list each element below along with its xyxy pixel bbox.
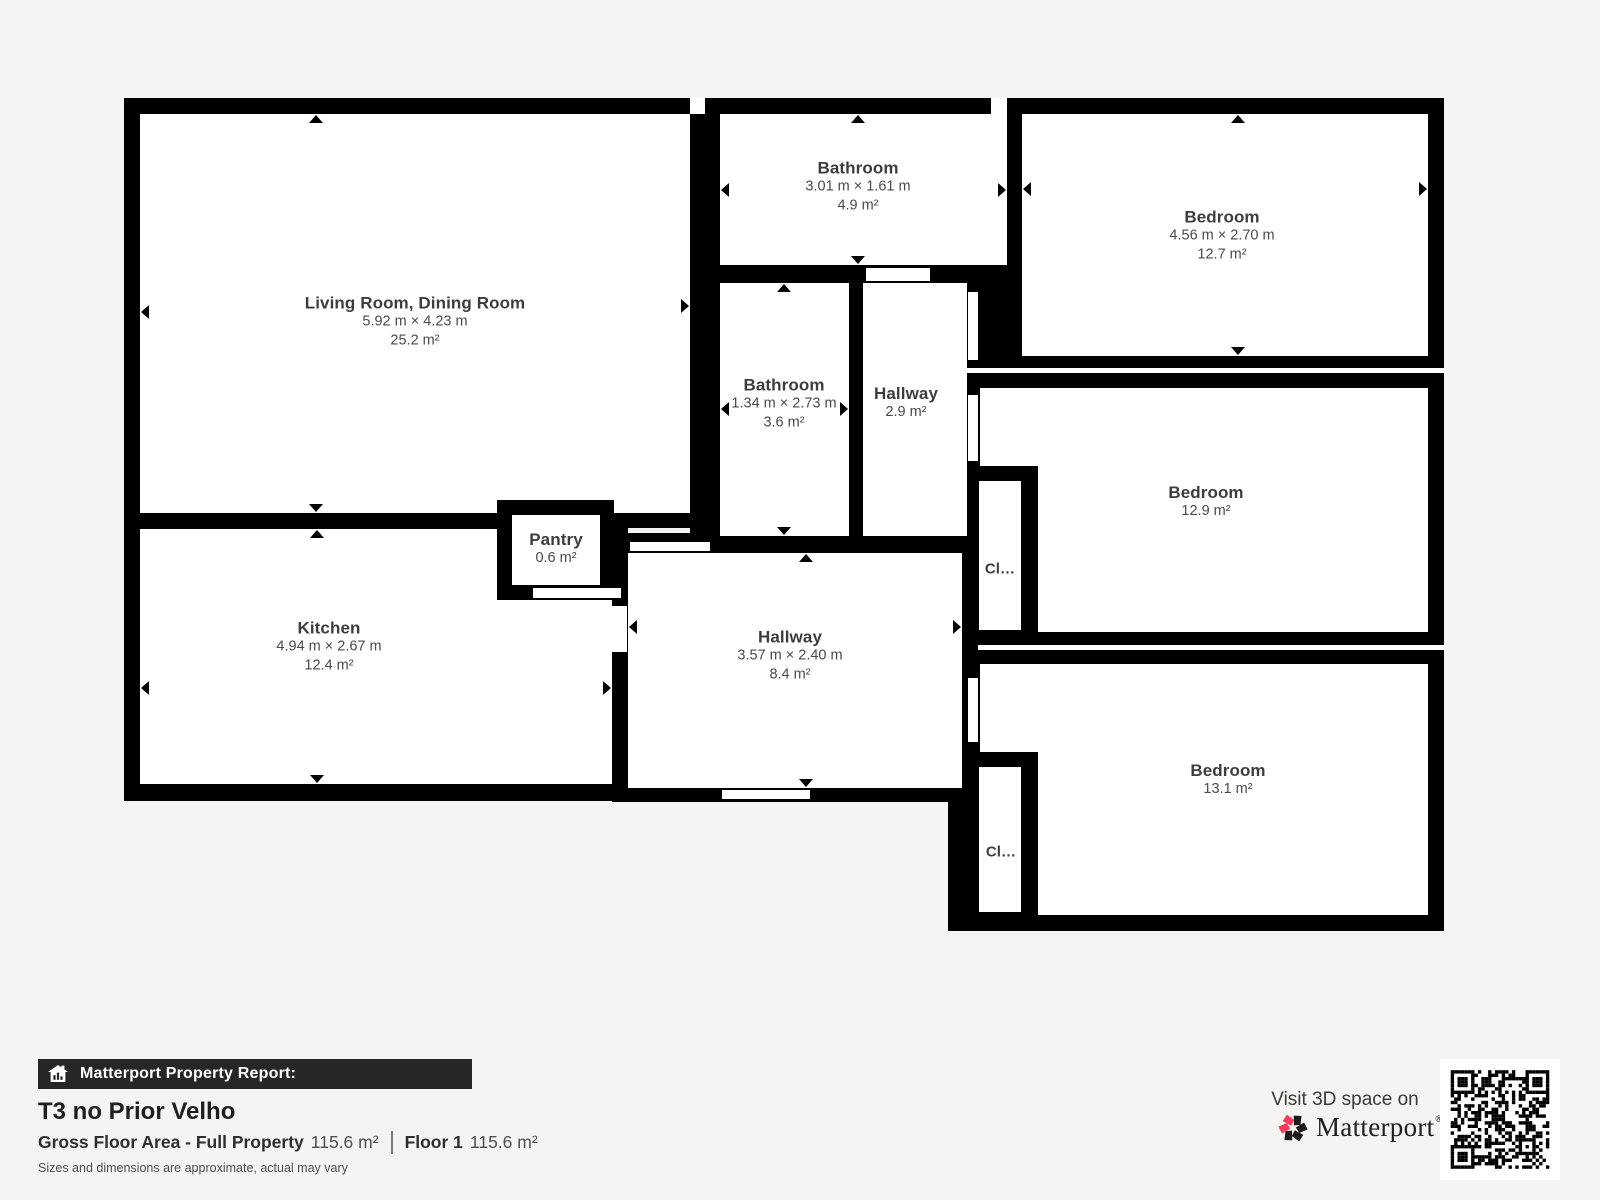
measure-arrow-right-icon bbox=[998, 183, 1006, 197]
block-seam bbox=[962, 368, 1444, 373]
room-label-text: Pantry bbox=[529, 530, 583, 549]
room-label-text: Bedroom bbox=[1168, 483, 1243, 502]
house-bar-chart-icon bbox=[48, 1065, 68, 1083]
measure-arrow-down-icon bbox=[799, 779, 813, 787]
room-label-bath_mid: Bathroom1.34 m × 2.73 m3.6 m² bbox=[731, 376, 836, 433]
disclaimer-text: Sizes and dimensions are approximate, ac… bbox=[38, 1161, 348, 1175]
block-seam bbox=[991, 98, 1007, 114]
measure-arrow-up-icon bbox=[1231, 115, 1245, 123]
room-label-text: 3.57 m × 2.40 m bbox=[737, 647, 842, 666]
report-banner-label: Matterport Property Report: bbox=[80, 1065, 296, 1083]
measure-arrow-left-icon bbox=[1023, 182, 1031, 196]
room-label-text: Bathroom bbox=[731, 376, 836, 395]
measure-arrow-right-icon bbox=[603, 681, 611, 695]
measure-arrow-right-icon bbox=[840, 402, 848, 416]
room-label-text: 13.1 m² bbox=[1190, 780, 1265, 799]
room-label-bed_top_right: Bedroom4.56 m × 2.70 m12.7 m² bbox=[1169, 208, 1274, 265]
room-label-text: 12.9 m² bbox=[1168, 502, 1243, 521]
room-floor-closet_top bbox=[979, 481, 1021, 630]
room-label-text: 3.6 m² bbox=[731, 414, 836, 433]
door-opening bbox=[610, 606, 627, 652]
matterport-wordmark: Matterport bbox=[1316, 1112, 1434, 1143]
room-label-text: 4.94 m × 2.67 m bbox=[276, 638, 381, 657]
measure-arrow-up-icon bbox=[310, 530, 324, 538]
room-label-closet_top: Cl… bbox=[985, 560, 1015, 579]
gross-floor-area-value: 115.6 m² bbox=[311, 1132, 379, 1153]
measure-arrow-up-icon bbox=[777, 284, 791, 292]
room-label-text: 12.4 m² bbox=[276, 657, 381, 676]
room-label-bath_top: Bathroom3.01 m × 1.61 m4.9 m² bbox=[805, 159, 910, 216]
room-label-text: 5.92 m × 4.23 m bbox=[305, 313, 526, 332]
room-label-text: 8.4 m² bbox=[737, 666, 842, 685]
room-label-text: Bathroom bbox=[805, 159, 910, 178]
stats-divider bbox=[391, 1131, 393, 1154]
room-label-text: Kitchen bbox=[276, 619, 381, 638]
measure-arrow-down-icon bbox=[310, 775, 324, 783]
measure-arrow-right-icon bbox=[953, 620, 961, 634]
door-opening bbox=[866, 268, 930, 281]
measure-arrow-right-icon bbox=[681, 299, 689, 313]
room-label-bed_bottom_right: Bedroom13.1 m² bbox=[1190, 761, 1265, 799]
room-label-text: 25.2 m² bbox=[305, 332, 526, 351]
room-label-kitchen: Kitchen4.94 m × 2.67 m12.4 m² bbox=[276, 619, 381, 676]
room-label-hall_main: Hallway3.57 m × 2.40 m8.4 m² bbox=[737, 628, 842, 685]
measure-arrow-right-icon bbox=[1419, 182, 1427, 196]
floor-value: 115.6 m² bbox=[470, 1132, 538, 1153]
room-label-closet_bottom: Cl… bbox=[986, 843, 1016, 862]
room-label-text: 2.9 m² bbox=[874, 403, 938, 422]
measure-arrow-down-icon bbox=[309, 504, 323, 512]
measure-arrow-left-icon bbox=[141, 681, 149, 695]
room-label-text: 3.01 m × 1.61 m bbox=[805, 178, 910, 197]
block-seam bbox=[690, 98, 705, 114]
measure-arrow-left-icon bbox=[721, 183, 729, 197]
room-label-text: Hallway bbox=[737, 628, 842, 647]
room-label-text: 4.9 m² bbox=[805, 197, 910, 216]
measure-arrow-down-icon bbox=[1231, 347, 1245, 355]
room-label-text: 0.6 m² bbox=[529, 549, 583, 568]
report-banner: Matterport Property Report: bbox=[38, 1059, 472, 1089]
measure-arrow-up-icon bbox=[799, 554, 813, 562]
room-label-text: 4.56 m × 2.70 m bbox=[1169, 227, 1274, 246]
door-opening bbox=[630, 542, 710, 551]
room-label-text: Bedroom bbox=[1190, 761, 1265, 780]
visit-3d-text: Visit 3D space on bbox=[1270, 1089, 1420, 1111]
room-label-living: Living Room, Dining Room5.92 m × 4.23 m2… bbox=[305, 294, 526, 351]
room-floor-closet_bottom bbox=[979, 767, 1021, 912]
room-label-pantry: Pantry0.6 m² bbox=[529, 530, 583, 568]
room-label-text: 12.7 m² bbox=[1169, 246, 1274, 265]
room-label-text: Bedroom bbox=[1169, 208, 1274, 227]
room-label-hall_small: Hallway2.9 m² bbox=[874, 384, 938, 422]
door-opening bbox=[968, 678, 978, 742]
measure-arrow-left-icon bbox=[721, 402, 729, 416]
matterport-brand: Matterport ® bbox=[1278, 1112, 1442, 1143]
measure-arrow-down-icon bbox=[851, 256, 865, 264]
measure-arrow-left-icon bbox=[141, 305, 149, 319]
gross-floor-area-label: Gross Floor Area - Full Property bbox=[38, 1132, 304, 1153]
floor-plan: Living Room, Dining Room5.92 m × 4.23 m2… bbox=[0, 0, 1600, 1200]
measure-arrow-left-icon bbox=[629, 620, 637, 634]
matterport-pinwheel-icon bbox=[1278, 1113, 1308, 1143]
block-seam bbox=[978, 645, 1444, 650]
qr-code bbox=[1440, 1059, 1560, 1180]
room-label-text: Living Room, Dining Room bbox=[305, 294, 526, 313]
door-opening bbox=[533, 588, 621, 598]
door-opening bbox=[968, 395, 978, 461]
measure-arrow-up-icon bbox=[309, 115, 323, 123]
floor-stats: Gross Floor Area - Full Property 115.6 m… bbox=[38, 1131, 538, 1154]
room-label-text: Cl… bbox=[986, 843, 1016, 862]
door-opening bbox=[722, 790, 810, 799]
room-label-text: 1.34 m × 2.73 m bbox=[731, 395, 836, 414]
door-opening bbox=[968, 292, 978, 360]
room-label-text: Hallway bbox=[874, 384, 938, 403]
property-title: T3 no Prior Velho bbox=[38, 1098, 235, 1126]
measure-arrow-up-icon bbox=[851, 115, 865, 123]
floor-label: Floor 1 bbox=[405, 1132, 463, 1153]
measure-arrow-down-icon bbox=[777, 527, 791, 535]
room-label-bed_mid_right: Bedroom12.9 m² bbox=[1168, 483, 1243, 521]
room-label-text: Cl… bbox=[985, 560, 1015, 579]
